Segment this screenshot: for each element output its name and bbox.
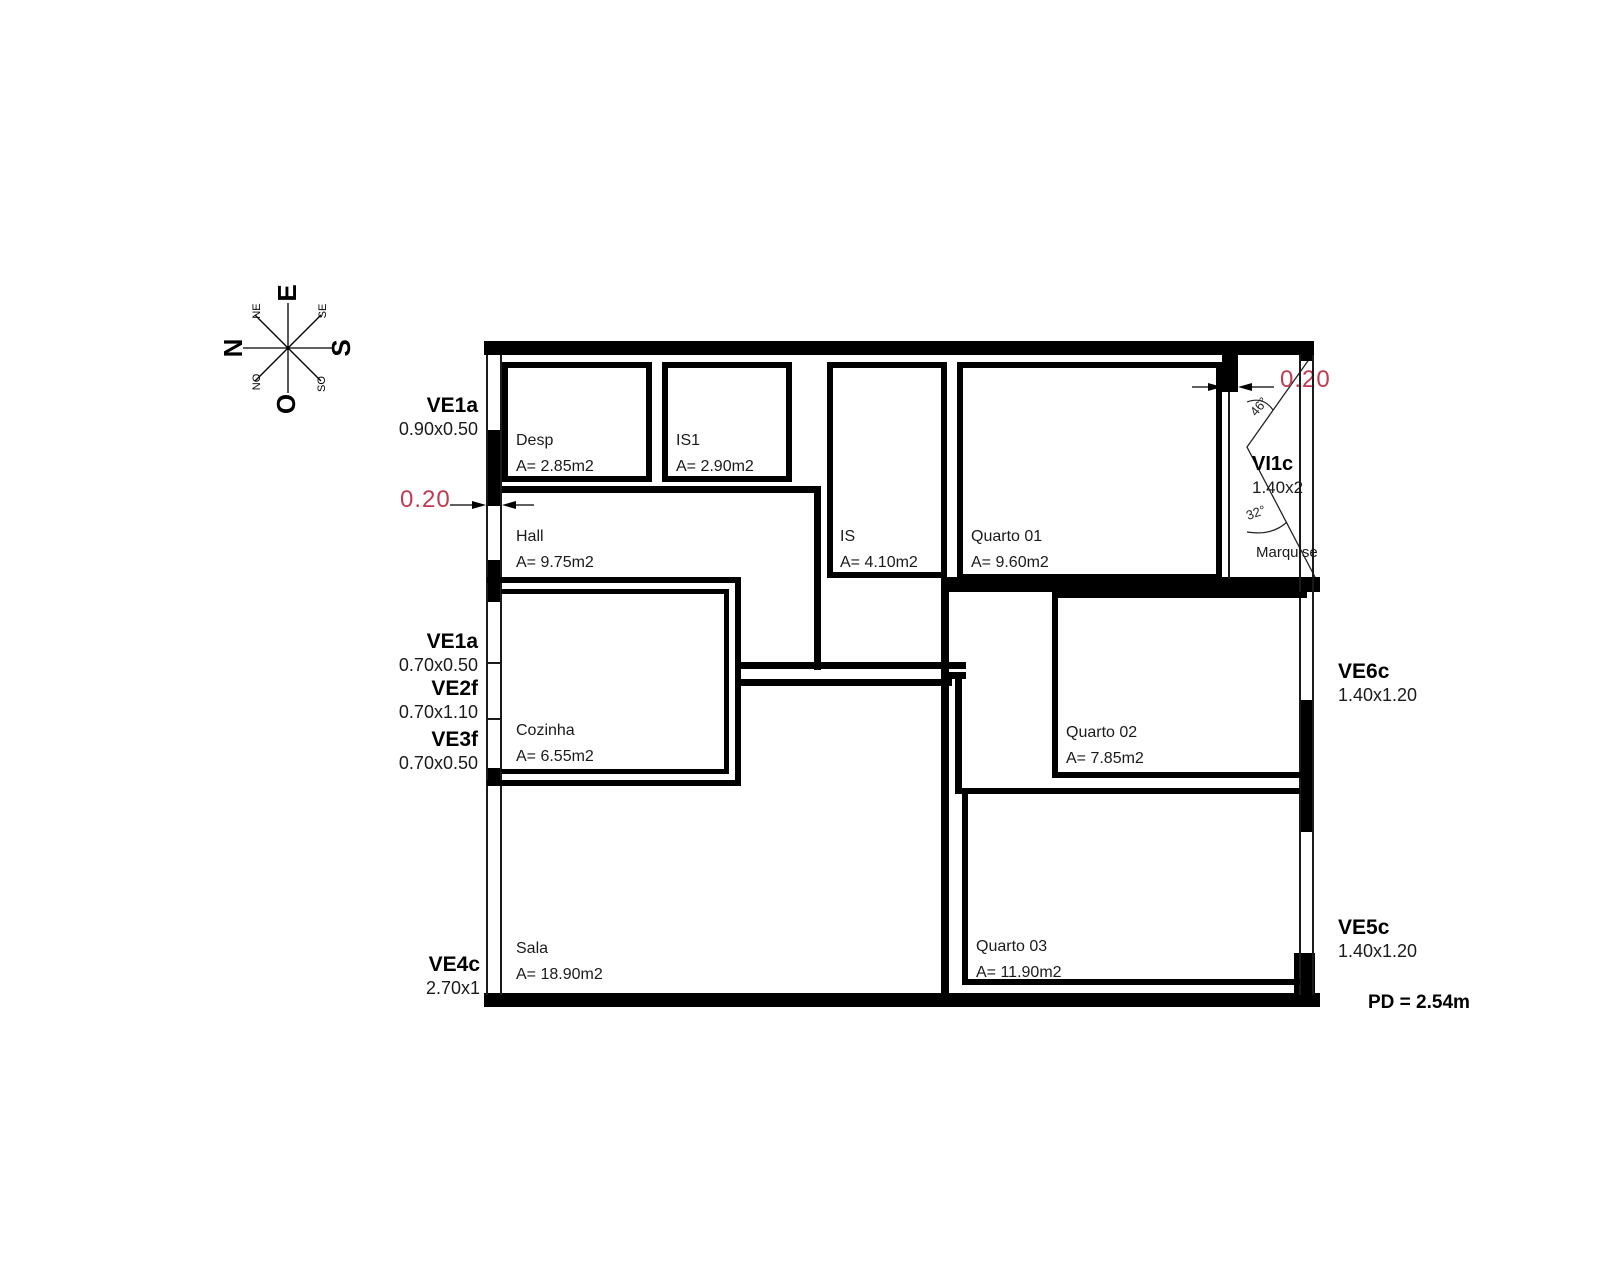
angle-arc-lower xyxy=(1247,522,1287,533)
wall-thickness-right: 0.20 xyxy=(1280,366,1331,394)
room-label-sala: SalaA= 18.90m2 xyxy=(516,936,603,988)
wall-segment xyxy=(814,486,821,670)
wall-thickness-left: 0.20 xyxy=(400,486,451,514)
room-box-quarto01 xyxy=(957,362,1222,580)
compass-label-so: SO xyxy=(316,376,328,392)
window-label-ve5c: VE5c1.40x1.20 xyxy=(1338,916,1417,963)
compass-label-n: N xyxy=(218,339,248,358)
wall-segment xyxy=(502,486,820,493)
wall-segment xyxy=(941,672,966,679)
window-label-ve3f: VE3f0.70x0.50 xyxy=(330,728,478,775)
compass-label-o: O xyxy=(271,394,301,414)
floor-plan-canvas: E N S O NE SE NO SO xyxy=(0,0,1600,1280)
wall-segment xyxy=(1222,355,1238,392)
ceiling-height-label: PD = 2.54m xyxy=(1368,992,1470,1014)
window-label-ve1a-top: VE1a0.90x0.50 xyxy=(330,394,478,441)
window-line xyxy=(1312,355,1314,995)
room-box-quarto02 xyxy=(1052,592,1307,778)
compass-label-no: NO xyxy=(251,373,263,390)
wall-segment xyxy=(738,679,952,686)
room-box-cozinha-inner xyxy=(501,589,729,774)
compass-label-s: S xyxy=(326,339,356,356)
window-label-ve4c: VE4c2.70x1 xyxy=(330,953,480,1000)
window-line xyxy=(1228,392,1230,579)
compass-label-e: E xyxy=(272,284,302,301)
wall-segment xyxy=(484,993,1320,1007)
window-label-vi1c: VI1c 1.40x2 xyxy=(1252,452,1303,499)
window-label-ve2f: VE2f0.70x1.10 xyxy=(330,677,478,724)
compass-label-ne: NE xyxy=(251,303,263,318)
room-box-desp xyxy=(502,362,652,482)
window-label-ve6c: VE6c1.40x1.20 xyxy=(1338,660,1417,707)
wall-segment xyxy=(484,341,1314,355)
room-box-is xyxy=(827,362,947,578)
room-label-marquise: Marquise xyxy=(1256,540,1318,566)
wall-segment xyxy=(955,672,962,794)
wall-segment xyxy=(738,662,966,669)
vector-overlay: E N S O NE SE NO SO xyxy=(0,0,1600,1280)
room-box-quarto03 xyxy=(962,788,1300,985)
room-label-hall: HallA= 9.75m2 xyxy=(516,524,594,576)
window-label-ve1a-mid: VE1a0.70x0.50 xyxy=(330,630,478,677)
room-box-is1 xyxy=(662,362,792,482)
compass-label-se: SE xyxy=(317,304,329,319)
wall-segment xyxy=(941,578,949,993)
